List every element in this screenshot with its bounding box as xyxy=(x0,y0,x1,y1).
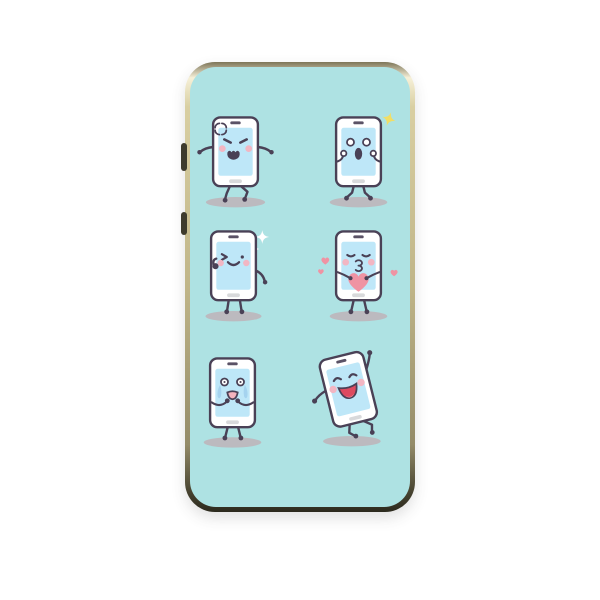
winking-phone-character xyxy=(191,225,276,325)
home-button xyxy=(229,179,242,183)
speaker-slot xyxy=(228,235,238,238)
crying-phone-drawing xyxy=(190,352,275,452)
dancing-phone-drawing xyxy=(307,350,392,450)
case-artwork-background xyxy=(190,67,410,507)
home-button xyxy=(352,293,365,297)
ground-shadow xyxy=(206,311,262,321)
speaker-slot xyxy=(230,121,240,124)
kissing-phone-character xyxy=(316,225,401,325)
speaker-slot xyxy=(353,235,363,238)
product-photo xyxy=(0,0,600,600)
case-power-button xyxy=(181,212,187,235)
dancing-phone-character xyxy=(307,350,392,450)
ground-shadow xyxy=(206,197,265,207)
case-volume-button xyxy=(181,143,187,171)
tilted-phone xyxy=(303,348,392,447)
speaker-slot xyxy=(353,121,363,124)
crying-phone-character xyxy=(190,352,275,452)
angry-phone-character xyxy=(193,111,278,211)
speaker-slot xyxy=(227,362,237,365)
surprised-phone-drawing xyxy=(316,111,401,211)
ground-shadow xyxy=(204,437,262,447)
home-button xyxy=(226,420,239,424)
ground-shadow xyxy=(323,436,381,446)
kissing-phone-drawing xyxy=(316,225,401,325)
wailing-mouth xyxy=(227,391,237,399)
ground-shadow xyxy=(330,311,388,321)
phone-case xyxy=(185,62,415,512)
home-button xyxy=(352,179,365,183)
ground-shadow xyxy=(330,197,388,207)
surprised-phone-character xyxy=(316,111,401,211)
home-button xyxy=(227,293,240,297)
flash-sparkle-icon xyxy=(380,110,398,128)
angry-phone-drawing xyxy=(193,111,278,211)
winking-phone-drawing xyxy=(191,225,276,325)
